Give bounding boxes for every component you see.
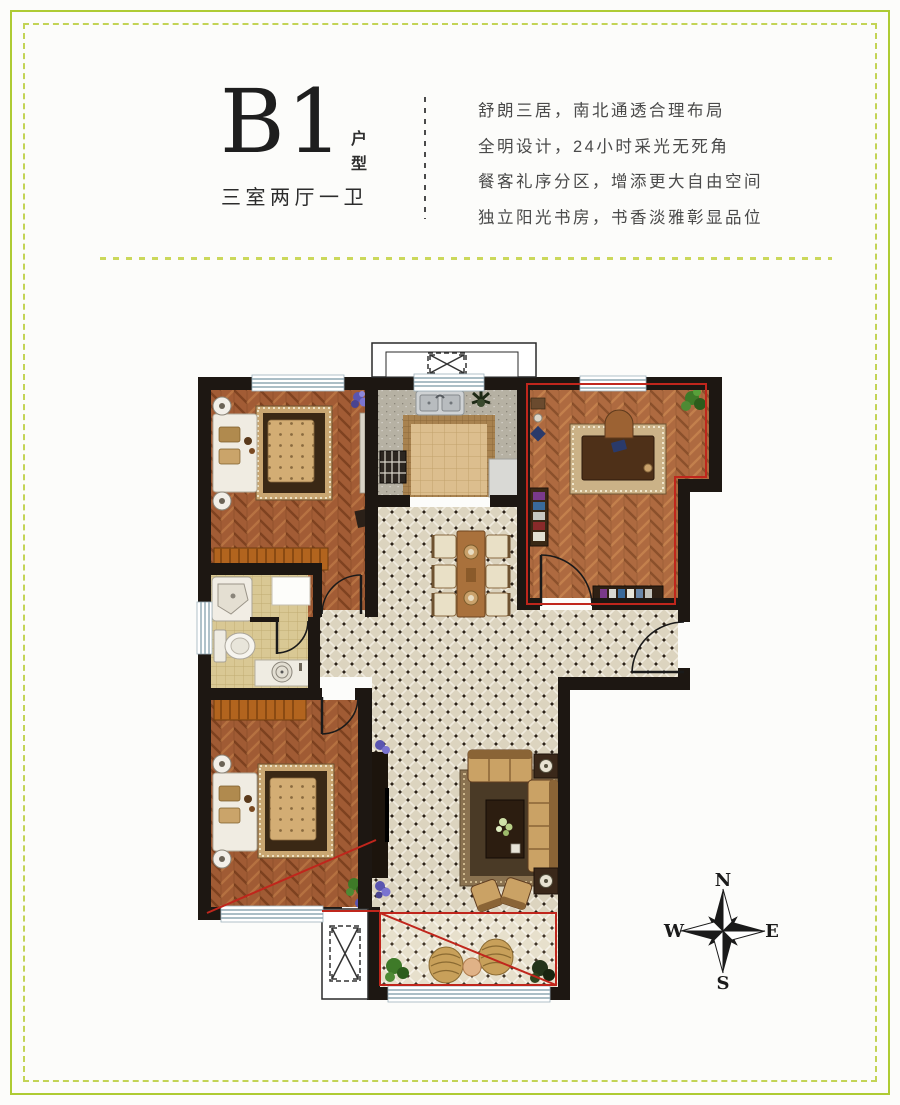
compass-rose: N S E W: [663, 870, 779, 994]
hallway-floor: [320, 610, 678, 677]
stove: [380, 451, 406, 483]
side-table: [463, 958, 481, 976]
compass-w-label: W: [663, 921, 685, 942]
compass-n-label: N: [715, 870, 731, 891]
dining-chair: [433, 593, 456, 616]
compass-s-label: S: [717, 973, 730, 994]
description-line: 餐客礼序分区，增添更大自由空间: [478, 165, 763, 201]
window: [252, 375, 344, 391]
floor-plan-image: N S E W: [185, 330, 785, 1030]
dining-chair: [486, 565, 509, 588]
floorplan-page: B1 户型 三室两厅一卫 舒朗三居，南北通透合理布局 全明设计，24小时采光无死…: [0, 0, 900, 1105]
description-block: 舒朗三居，南北通透合理布局 全明设计，24小时采光无死角 餐客礼序分区，增添更大…: [478, 94, 763, 236]
dining-chair: [486, 535, 509, 558]
window: [414, 374, 484, 391]
unit-code: B1: [220, 78, 345, 166]
dining-chair: [433, 535, 456, 558]
flue-shaft: [322, 909, 368, 999]
refrigerator: [489, 459, 519, 497]
dining-set: [433, 531, 509, 617]
desk-chair: [605, 410, 633, 438]
header-divider: [424, 97, 426, 219]
description-line: 舒朗三居，南北通透合理布局: [478, 94, 763, 130]
description-line: 全明设计，24小时采光无死角: [478, 130, 763, 166]
wardrobe: [360, 413, 365, 493]
dining-chair: [433, 565, 456, 588]
window: [221, 906, 323, 922]
section-divider: [100, 257, 832, 260]
window: [388, 986, 550, 1002]
layout-summary: 三室两厅一卫: [221, 181, 368, 210]
compass-e-label: E: [765, 921, 779, 942]
dining-chair: [486, 593, 509, 616]
window: [197, 602, 212, 654]
toilet: [214, 630, 226, 662]
description-line: 独立阳光书房，书香淡雅彰显品位: [478, 201, 763, 237]
unit-type-label: 户型: [344, 130, 368, 180]
flue-shaft: [372, 343, 536, 377]
shower-tray: [272, 577, 310, 605]
